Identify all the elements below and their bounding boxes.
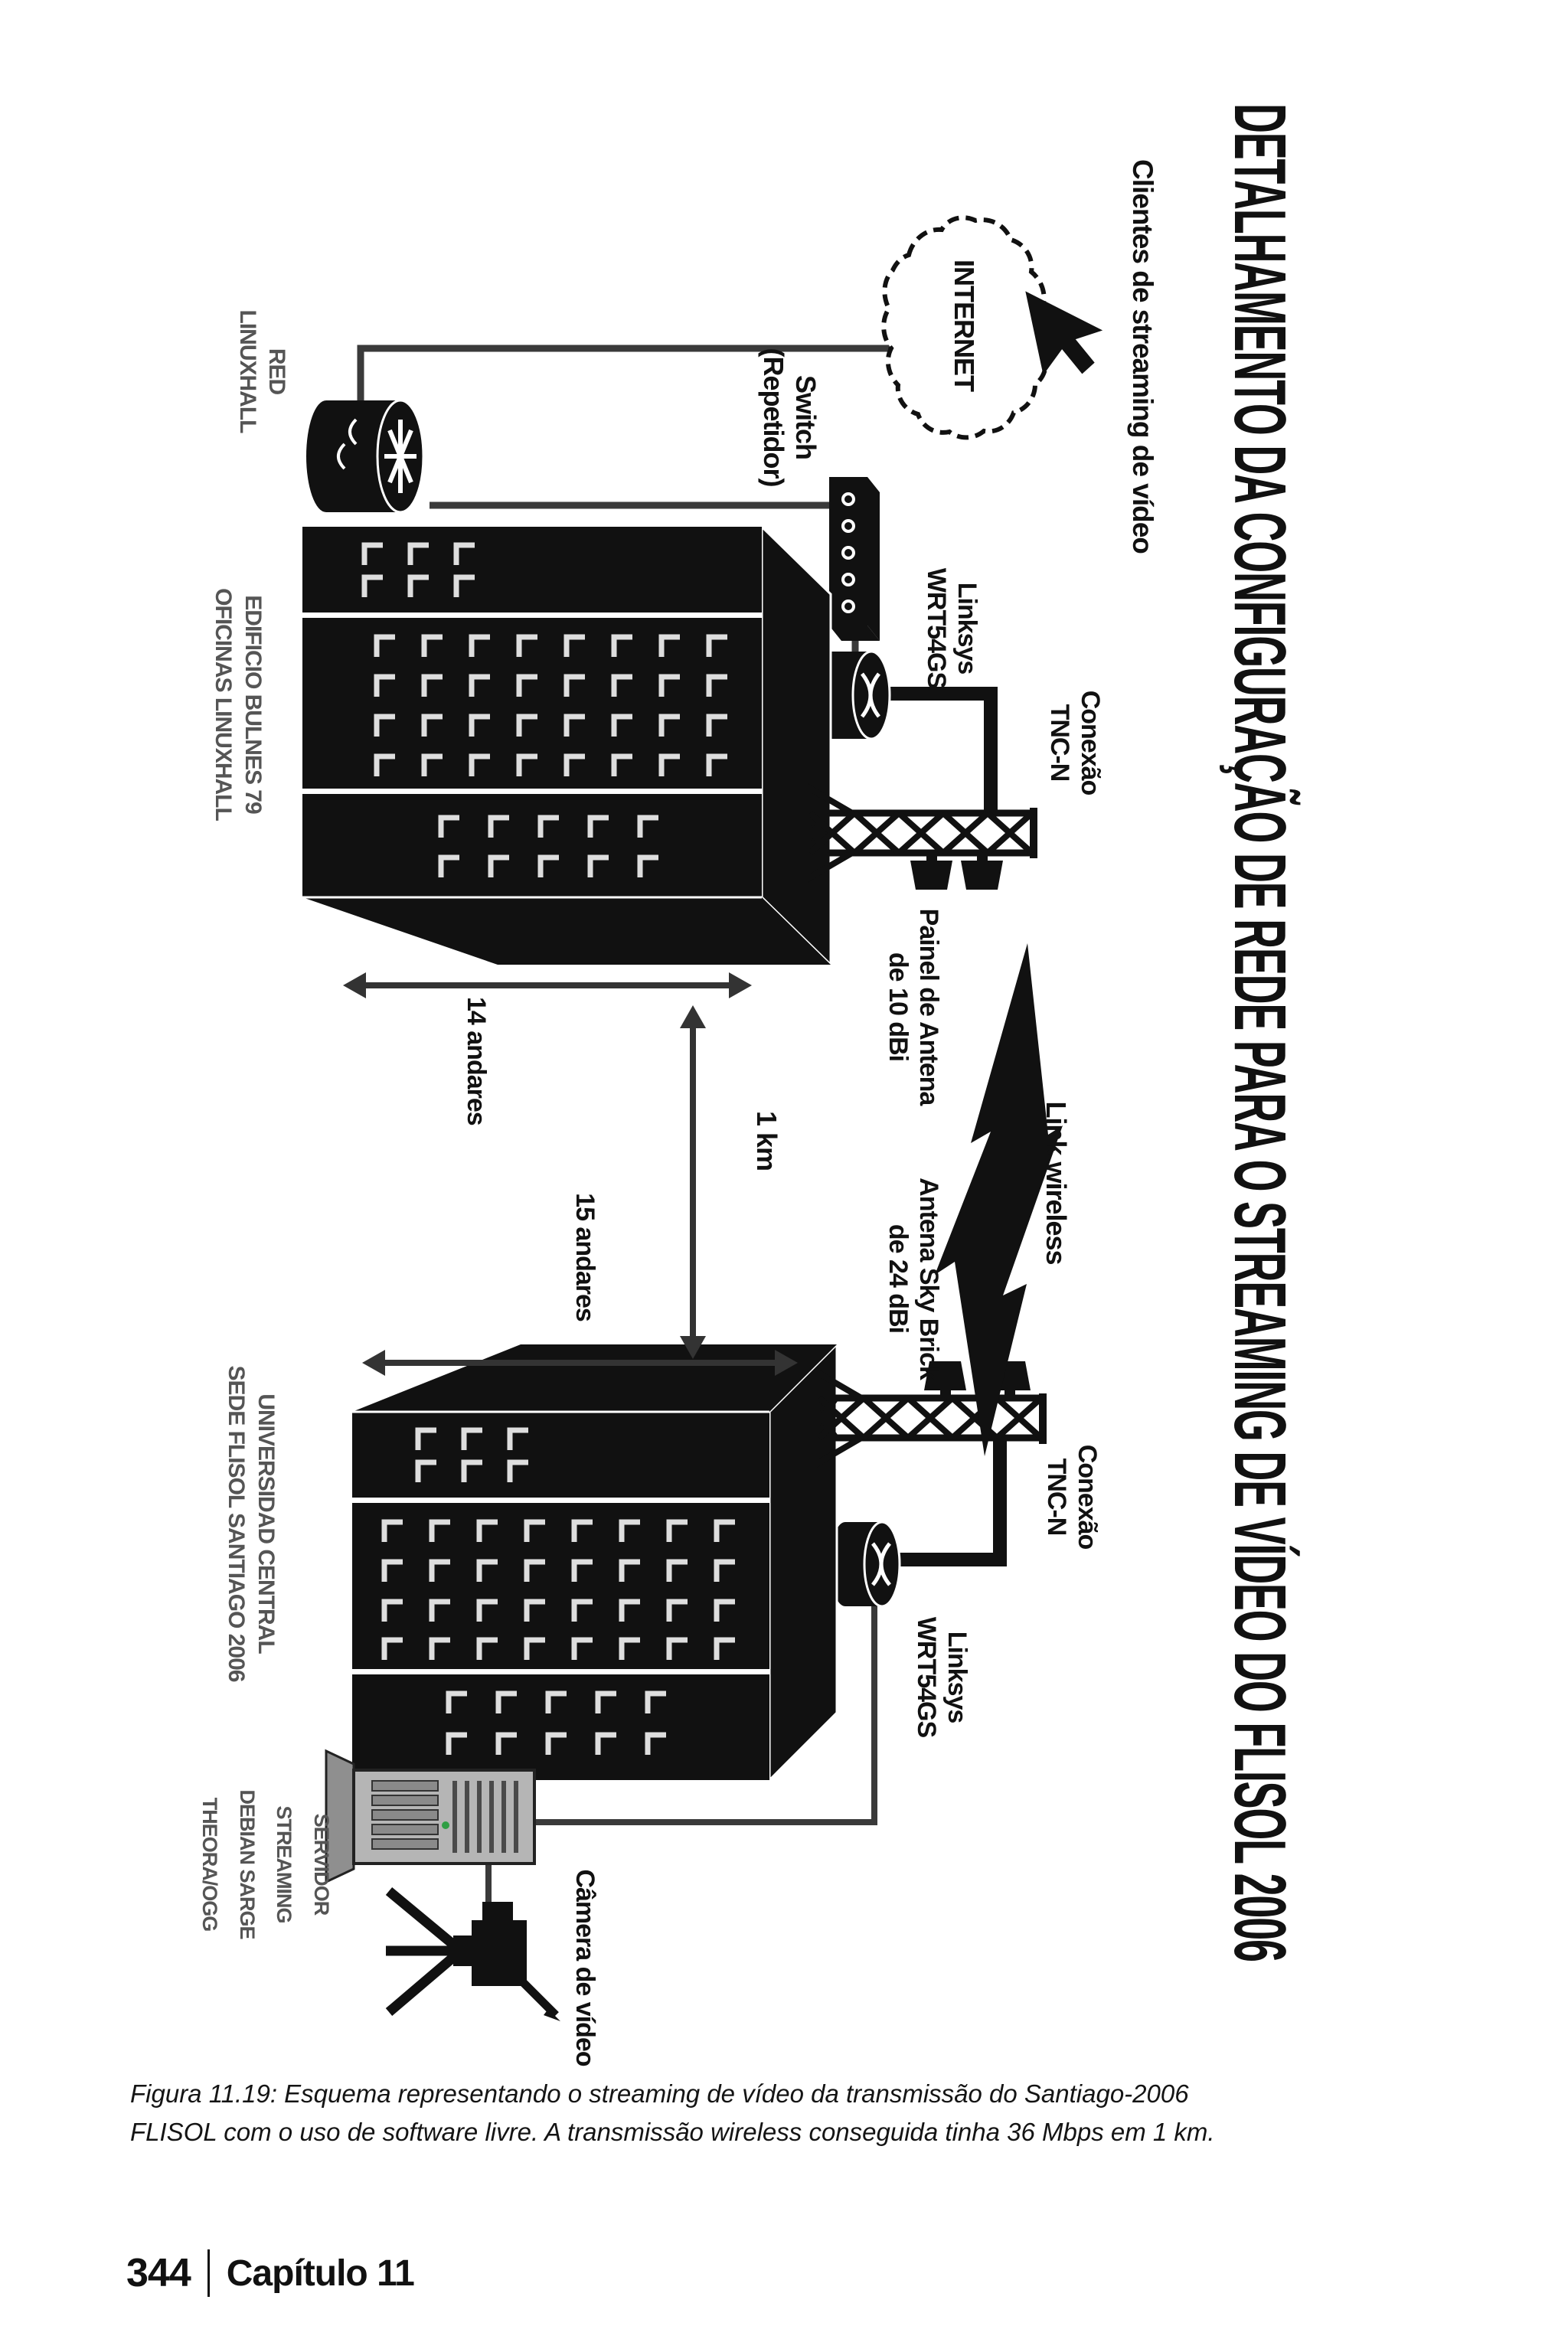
- page-footer: 344 Capítulo 11: [126, 2249, 414, 2297]
- server-icon: [326, 1751, 534, 1882]
- antenna-tower-top-icon: [806, 786, 1034, 890]
- figure-caption: Figura 11.19: Esquema representando o st…: [130, 2075, 1393, 2151]
- distance-1km-label: 1 km: [750, 1095, 782, 1187]
- router-icon: [306, 400, 423, 512]
- building-bottom: [352, 1344, 837, 1780]
- red-linuxhall-label: REDLINUXHALL: [234, 291, 291, 452]
- conexao-top-label: ConexãoTNC-N: [1044, 678, 1106, 808]
- wireless-router-bottom-icon: [830, 1522, 900, 1606]
- floors-14-label: 14 andares: [461, 997, 492, 1125]
- building-top-label: EDIFICIO BULNES 79OFICINAS LINUXHALL: [208, 544, 268, 865]
- clients-label: Clientes de streaming de vídeo: [1125, 159, 1159, 554]
- building-top: [302, 527, 831, 965]
- linksys-bottom-label: LinksysWRT54GS: [911, 1606, 972, 1748]
- video-camera-icon: [386, 1891, 560, 2021]
- book-page: DETALHAMENTO DA CONFIGURAÇÃO DE REDE PAR…: [0, 0, 1568, 2352]
- page-number: 344: [126, 2250, 191, 2296]
- building-bottom-label: UNIVERSIDAD CENTRALSEDE FLISOL SANTIAGO …: [221, 1317, 281, 1730]
- chapter-label: Capítulo 11: [227, 2252, 414, 2295]
- linksys-top-label: LinksysWRT54GS: [921, 557, 982, 699]
- camera-label: Câmera de vídeo: [570, 1845, 600, 2090]
- sky-brick-label: Antena Sky Brickde 24 dBi: [883, 1171, 944, 1386]
- figure-title: DETALHAMENTO DA CONFIGURAÇÃO DE REDE PAR…: [1217, 103, 1302, 2063]
- internet-label: INTERNET: [948, 241, 980, 410]
- conexao-bottom-label: ConexãoTNC-N: [1041, 1432, 1102, 1562]
- floors-15-label: 15 andares: [570, 1181, 600, 1334]
- switch-icon: [829, 477, 880, 641]
- link-wireless-label: Link wireless: [1040, 1057, 1072, 1309]
- footer-divider: [207, 2249, 210, 2297]
- painel-antena-label: Painel de Antenade 10 dBi: [883, 903, 944, 1110]
- server-label: SERVIDOR STREAMING DEBIAN SARGE THEORA/O…: [191, 1772, 340, 1956]
- network-diagram-figure: DETALHAMENTO DA CONFIGURAÇÃO DE REDE PAR…: [84, 61, 1539, 2174]
- switch-label: Switch(Repetidor): [756, 337, 822, 498]
